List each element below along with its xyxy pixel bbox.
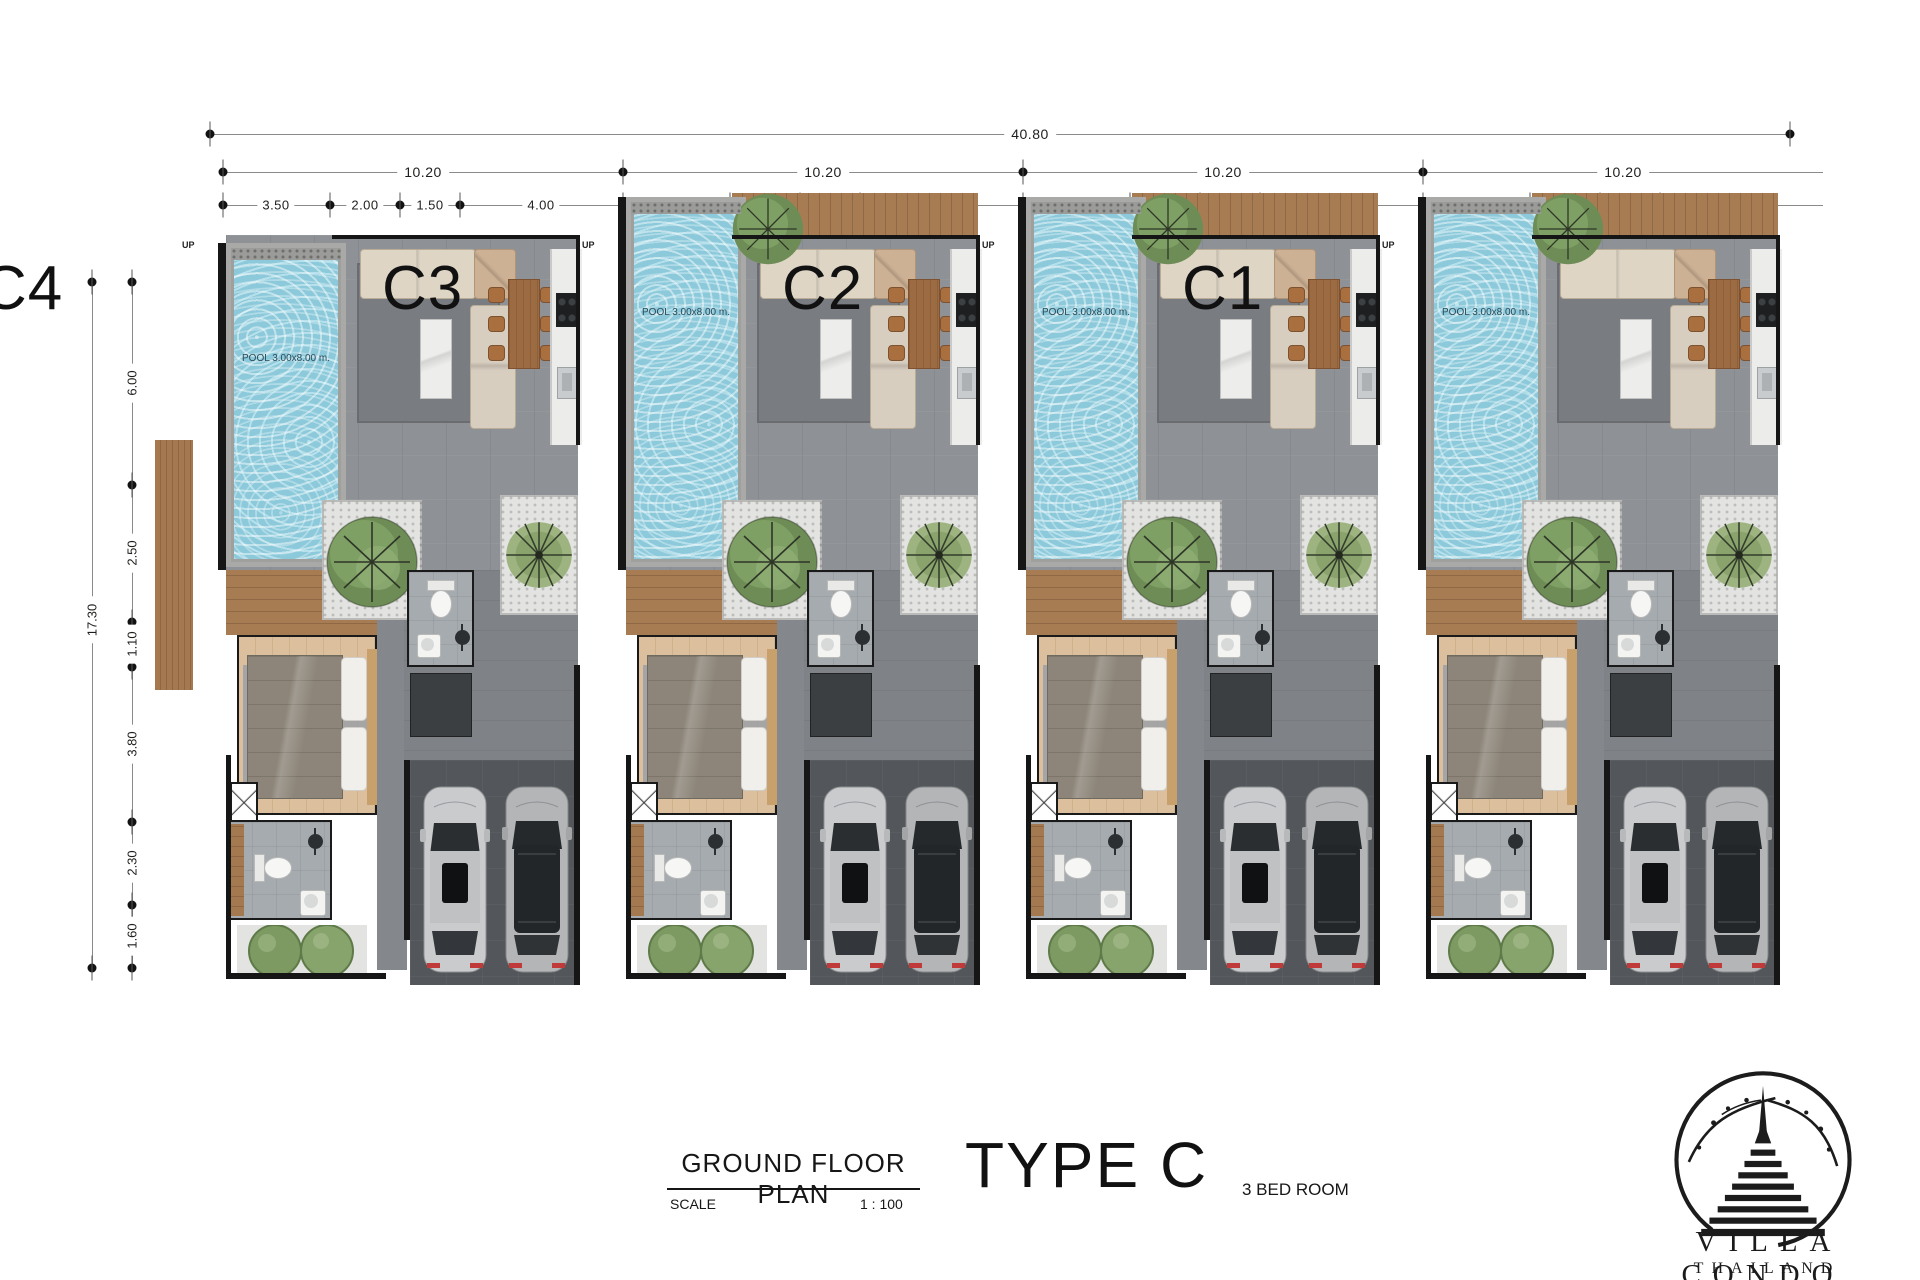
pool-size-label: POOL 3.00x8.00 m.: [1042, 307, 1130, 318]
bed-headboard: [767, 649, 777, 805]
wardrobe: [230, 824, 244, 916]
coffee-table: [1220, 319, 1252, 399]
hallway-floor: [377, 570, 407, 970]
car-icon: [1620, 783, 1690, 976]
wardrobe: [630, 824, 644, 916]
pillow: [741, 727, 767, 791]
pool-size-label: POOL 3.00x8.00 m.: [642, 307, 730, 318]
unit-width-dimension: 10.20: [1597, 164, 1649, 180]
bed: [247, 655, 343, 799]
washbasin-icon: [817, 634, 841, 658]
washbasin-icon: [300, 890, 326, 916]
bathroom: [1607, 570, 1674, 667]
pillow: [341, 657, 367, 721]
wall: [404, 760, 410, 940]
pillow: [741, 657, 767, 721]
bush-icons: [237, 925, 367, 977]
wall: [626, 973, 786, 979]
shower-icon: [1108, 834, 1123, 849]
bedroom: [637, 635, 777, 815]
cooktop-icon: [1756, 293, 1778, 327]
washbasin-icon: [1617, 634, 1641, 658]
wall: [1026, 973, 1186, 979]
wall: [974, 665, 980, 985]
gravel-strip: [231, 248, 341, 260]
wall: [1132, 235, 1380, 239]
wall: [574, 665, 580, 985]
dimension-tick: [1419, 168, 1428, 177]
wall: [804, 760, 810, 940]
car-icon: [420, 783, 490, 976]
spiky-tree-icon: [500, 495, 578, 615]
dimension-tick: [1019, 168, 1028, 177]
gravel-strip: [1031, 202, 1141, 214]
bathroom: [407, 570, 474, 667]
bedroom: [237, 635, 377, 815]
car-icon: [1702, 783, 1772, 976]
floor-plan-sheet: 40.80 17.30 6.00 2.50 1.10 3.80 2.30 1.6…: [0, 0, 1920, 1280]
up-stairs-label: UP: [1382, 240, 1395, 250]
tree-planter: [1700, 495, 1778, 615]
dimension-tick: [219, 168, 228, 177]
dining-chair: [888, 345, 905, 361]
unit-width-dimension: 10.20: [397, 164, 449, 180]
bedroom: [1037, 635, 1177, 815]
sub-dimension: 4.00: [522, 198, 559, 213]
bed-headboard: [367, 649, 377, 805]
window-icon: [230, 782, 258, 822]
wall: [1426, 755, 1431, 979]
tree-planter: [500, 495, 578, 615]
dining-chair: [1688, 316, 1705, 332]
storage-closet: [410, 673, 472, 737]
wall: [1532, 235, 1780, 239]
toilet-icon: [264, 857, 292, 879]
wall: [1604, 760, 1610, 940]
pillow: [1541, 727, 1567, 791]
scale-label: SCALE: [670, 1196, 716, 1212]
wall: [226, 973, 386, 979]
tree-planter: [900, 495, 978, 615]
car-icon: [1220, 783, 1290, 976]
garden-planter: [1037, 925, 1167, 977]
washbasin-icon: [1217, 634, 1241, 658]
villa-unit: 10.20 3.50 2.00 1.50 4.00 POOL 3.00x8.00…: [1382, 235, 1782, 985]
hallway-floor: [1177, 570, 1207, 970]
car-icon: [820, 783, 890, 976]
tree-planter: [1300, 495, 1378, 615]
scale-value: 1 : 100: [860, 1196, 903, 1212]
washbasin-icon: [1500, 890, 1526, 916]
washbasin-icon: [1100, 890, 1126, 916]
dimension-tick: [619, 168, 628, 177]
bedroom-count-label: 3 BED ROOM: [1242, 1180, 1349, 1200]
wall: [226, 755, 231, 979]
bed: [1047, 655, 1143, 799]
side-wood-deck: [155, 440, 193, 690]
bathroom: [1026, 820, 1132, 920]
sub-dimension: 2.00: [346, 198, 383, 213]
bathroom: [626, 820, 732, 920]
spiky-tree-icon: [1700, 495, 1778, 615]
villa-unit: 10.20 3.50 2.00 1.50 4.00 POOL 3.00x8.00…: [982, 235, 1382, 985]
pillow: [341, 727, 367, 791]
coffee-table: [1620, 319, 1652, 399]
bathroom: [1207, 570, 1274, 667]
plan-type-label: TYPE C: [965, 1128, 1208, 1202]
car-icon: [902, 783, 972, 976]
wall: [1026, 755, 1031, 979]
coffee-table: [820, 319, 852, 399]
bed: [1447, 655, 1543, 799]
storage-closet: [1210, 673, 1272, 737]
bathroom: [226, 820, 332, 920]
dining-chair: [488, 345, 505, 361]
washbasin-icon: [700, 890, 726, 916]
bedroom: [1437, 635, 1577, 815]
pool-size-label: POOL 3.00x8.00 m.: [242, 353, 330, 364]
garden-planter: [637, 925, 767, 977]
gravel-strip: [1431, 202, 1541, 214]
up-stairs-label: UP: [582, 240, 595, 250]
wall: [332, 235, 580, 239]
villa-unit: 10.20 3.50 2.00 1.50 4.00 POOL 3.00x8.00…: [582, 235, 982, 985]
units-layer: 10.20 3.50 2.00 1.50 4.00 POOL 3.00x8.00…: [0, 0, 1920, 1280]
spiky-tree-icon: [1300, 495, 1378, 615]
bush-icons: [1037, 925, 1167, 977]
villa-unit: 10.20 3.50 2.00 1.50 4.00 POOL 3.00x8.00…: [182, 235, 582, 985]
garden-planter: [1437, 925, 1567, 977]
bed: [647, 655, 743, 799]
wall: [1776, 235, 1780, 445]
bush-icons: [1437, 925, 1567, 977]
window-icon: [630, 782, 658, 822]
wall: [1774, 665, 1780, 985]
coffee-table: [420, 319, 452, 399]
bush-icons: [637, 925, 767, 977]
wardrobe: [1030, 824, 1044, 916]
hallway-floor: [777, 570, 807, 970]
dining-table: [1708, 279, 1740, 369]
wall: [732, 235, 980, 239]
shower-icon: [1255, 630, 1270, 645]
up-stairs-label: UP: [182, 240, 195, 250]
shower-icon: [855, 630, 870, 645]
pillow: [1141, 657, 1167, 721]
shower-icon: [455, 630, 470, 645]
hallway-floor: [1577, 570, 1607, 970]
bathroom: [1426, 820, 1532, 920]
unit-width-dimension: 10.20: [1197, 164, 1249, 180]
shower-icon: [308, 834, 323, 849]
bed-headboard: [1567, 649, 1577, 805]
sub-dimension: 3.50: [257, 198, 294, 213]
wall: [1204, 760, 1210, 940]
washbasin-icon: [417, 634, 441, 658]
toilet-icon: [1064, 857, 1092, 879]
toilet-icon: [664, 857, 692, 879]
toilet-icon: [830, 590, 852, 618]
logo-country: THAILAND: [1608, 1260, 1918, 1278]
bed-headboard: [1167, 649, 1177, 805]
pillow: [1141, 727, 1167, 791]
shower-icon: [708, 834, 723, 849]
wall: [626, 755, 631, 979]
dining-chair: [1688, 287, 1705, 303]
wall: [1426, 973, 1586, 979]
storage-closet: [810, 673, 872, 737]
pool-size-label: POOL 3.00x8.00 m.: [1442, 307, 1530, 318]
gravel-strip: [631, 202, 741, 214]
dining-chair: [1688, 345, 1705, 361]
shower-icon: [1655, 630, 1670, 645]
toilet-icon: [1230, 590, 1252, 618]
dimension-tick: [396, 201, 405, 210]
wardrobe: [1430, 824, 1444, 916]
dining-chair: [1288, 345, 1305, 361]
window-icon: [1430, 782, 1458, 822]
unit-width-dimension: 10.20: [797, 164, 849, 180]
sub-dimension: 1.50: [411, 198, 448, 213]
pillow: [1541, 657, 1567, 721]
dimension-tick: [326, 201, 335, 210]
window-icon: [1030, 782, 1058, 822]
up-stairs-label: UP: [982, 240, 995, 250]
unit-label: C4: [0, 253, 382, 324]
toilet-icon: [1630, 590, 1652, 618]
storage-closet: [1610, 673, 1672, 737]
bathroom: [807, 570, 874, 667]
wall: [1374, 665, 1380, 985]
spiky-tree-icon: [900, 495, 978, 615]
car-icon: [1302, 783, 1372, 976]
garden-planter: [237, 925, 367, 977]
title-rule: [667, 1188, 920, 1190]
dimension-tick: [456, 201, 465, 210]
toilet-icon: [1464, 857, 1492, 879]
toilet-icon: [430, 590, 452, 618]
dimension-tick: [219, 201, 228, 210]
car-icon: [502, 783, 572, 976]
shower-icon: [1508, 834, 1523, 849]
